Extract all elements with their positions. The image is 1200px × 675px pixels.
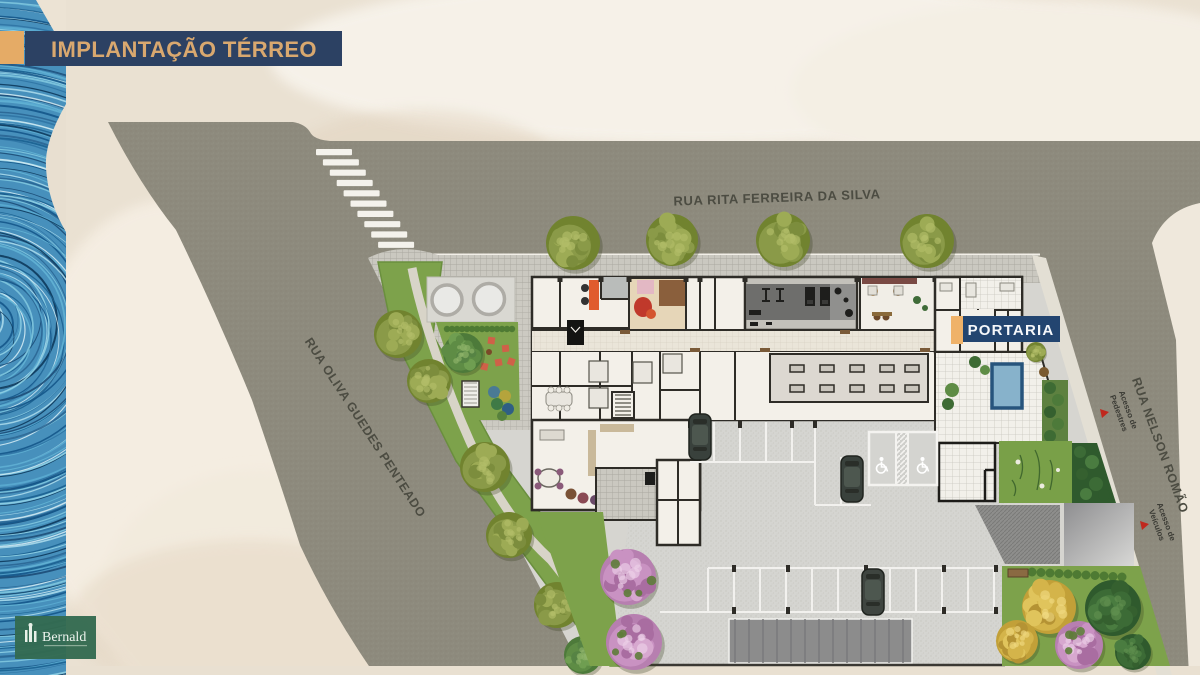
svg-text:IMPLANTAÇÃO TÉRREO: IMPLANTAÇÃO TÉRREO — [51, 37, 317, 62]
svg-text:Bernald: Bernald — [42, 630, 86, 645]
svg-text:PORTARIA: PORTARIA — [968, 322, 1055, 339]
